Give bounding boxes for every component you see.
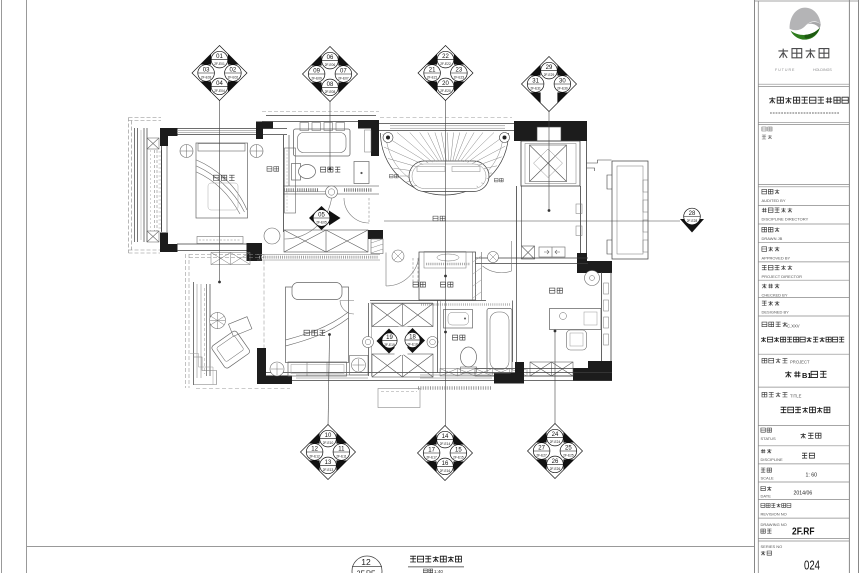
svg-text:DRAWN JB: DRAWN JB (762, 236, 783, 241)
svg-text:18: 18 (409, 335, 416, 341)
svg-text:29: 29 (546, 65, 553, 71)
svg-text:PROJECT DIRECTOR: PROJECT DIRECTOR (762, 274, 803, 279)
svg-text:20: 20 (442, 81, 449, 87)
svg-text:2F-E13: 2F-E13 (323, 468, 334, 472)
svg-text:HOLDINGS: HOLDINGS (813, 68, 832, 72)
svg-text:14: 14 (442, 434, 449, 440)
svg-text:1: 60: 1: 60 (806, 473, 818, 479)
svg-text:31: 31 (532, 79, 539, 85)
svg-text:05: 05 (318, 213, 325, 219)
svg-text:2F-E03: 2F-E03 (201, 76, 212, 80)
svg-text:TITLE: TITLE (790, 394, 802, 399)
svg-text:2F-E19: 2F-E19 (384, 343, 395, 347)
svg-text:13: 13 (325, 460, 332, 466)
svg-text:2F-E06: 2F-E06 (325, 63, 336, 67)
svg-text:28: 28 (689, 211, 696, 217)
svg-text:24: 24 (552, 432, 559, 438)
svg-text:DESIGNED BY: DESIGNED BY (762, 310, 790, 315)
svg-text:12: 12 (361, 557, 371, 567)
svg-text:10: 10 (325, 433, 332, 439)
svg-text:11: 11 (338, 447, 345, 453)
svg-text:23: 23 (456, 68, 463, 74)
svg-text:2F-E09: 2F-E09 (311, 77, 322, 81)
svg-text:024: 024 (804, 558, 820, 573)
svg-text:2F-E22: 2F-E22 (440, 62, 451, 66)
svg-text:DISCIPLINE DIRECTORY: DISCIPLINE DIRECTORY (762, 217, 809, 222)
svg-text:2F-E27: 2F-E27 (536, 454, 547, 458)
svg-text:2F-E23: 2F-E23 (454, 76, 465, 80)
svg-text:2F-E30: 2F-E30 (557, 87, 568, 91)
svg-text:07: 07 (340, 69, 347, 75)
svg-text:2F-E12: 2F-E12 (309, 455, 320, 459)
svg-text:REVISION NO: REVISION NO (761, 512, 787, 517)
svg-text:APPROVED BY: APPROVED BY (762, 255, 791, 260)
svg-text:22: 22 (442, 54, 449, 60)
svg-text:1:40: 1:40 (434, 569, 443, 573)
svg-text:AUDITED BY: AUDITED BY (762, 198, 786, 203)
svg-text:04: 04 (216, 81, 223, 87)
svg-text:19: 19 (386, 335, 393, 341)
svg-text:09: 09 (313, 69, 320, 75)
svg-text:2F-E04: 2F-E04 (214, 89, 225, 93)
svg-text:12: 12 (311, 447, 318, 453)
svg-text:F U T U R E: F U T U R E (775, 68, 795, 72)
svg-text:2F-E25: 2F-E25 (563, 454, 574, 458)
svg-text:2F-E20: 2F-E20 (440, 89, 451, 93)
svg-text:2F-E14: 2F-E14 (440, 442, 451, 446)
svg-text:27: 27 (538, 446, 545, 452)
svg-text:SCALE: SCALE (761, 476, 774, 481)
svg-text:PROJECT: PROJECT (790, 360, 810, 365)
svg-text:2F-E01: 2F-E01 (214, 62, 225, 66)
svg-text:2F-E21: 2F-E21 (427, 76, 438, 80)
svg-text:16: 16 (442, 461, 449, 467)
svg-text:STATUS: STATUS (761, 436, 777, 441)
svg-text:2F-E16: 2F-E16 (440, 469, 451, 473)
svg-text:2014/06: 2014/06 (794, 491, 813, 497)
svg-text:01: 01 (216, 54, 223, 60)
svg-text:2F-E28: 2F-E28 (687, 219, 698, 223)
svg-text:08: 08 (327, 82, 334, 88)
svg-text:2F-E08: 2F-E08 (325, 90, 336, 94)
svg-text:SERIES NO: SERIES NO (761, 544, 783, 549)
svg-text:26: 26 (552, 459, 559, 465)
svg-text:2F-E24: 2F-E24 (550, 440, 561, 444)
svg-text:2F-E05: 2F-E05 (316, 221, 327, 225)
svg-text:DISCIPLINE: DISCIPLINE (761, 457, 784, 462)
svg-text:30: 30 (559, 79, 566, 85)
svg-text:2F-E15: 2F-E15 (453, 456, 464, 460)
svg-text:17: 17 (428, 448, 435, 454)
svg-text:2F-E11: 2F-E11 (336, 455, 346, 459)
svg-text:15: 15 (455, 448, 462, 454)
svg-text:03: 03 (203, 68, 210, 74)
svg-text:2F-E10: 2F-E10 (323, 441, 334, 445)
svg-text:2F-E18: 2F-E18 (407, 343, 418, 347)
svg-text:2F-E31: 2F-E31 (530, 87, 541, 91)
svg-text:2F-E29: 2F-E29 (544, 73, 555, 77)
svg-text:2F-E17: 2F-E17 (426, 456, 437, 460)
svg-text:DATE: DATE (761, 494, 772, 499)
svg-text:21: 21 (429, 68, 436, 74)
svg-text:CHECKED BY: CHECKED BY (762, 292, 788, 297)
svg-text:02: 02 (230, 68, 237, 74)
svg-text:2F.RF: 2F.RF (792, 526, 815, 538)
svg-text:DRAWING NO: DRAWING NO (761, 522, 787, 527)
svg-text:C.XXV: C.XXV (787, 324, 800, 329)
svg-text:25: 25 (565, 446, 572, 452)
svg-text:B1: B1 (802, 371, 811, 380)
svg-text:06: 06 (327, 55, 334, 61)
svg-text:2F-E07: 2F-E07 (338, 77, 349, 81)
svg-text:2F-E02: 2F-E02 (228, 76, 239, 80)
svg-text:2F-E26: 2F-E26 (550, 467, 561, 471)
